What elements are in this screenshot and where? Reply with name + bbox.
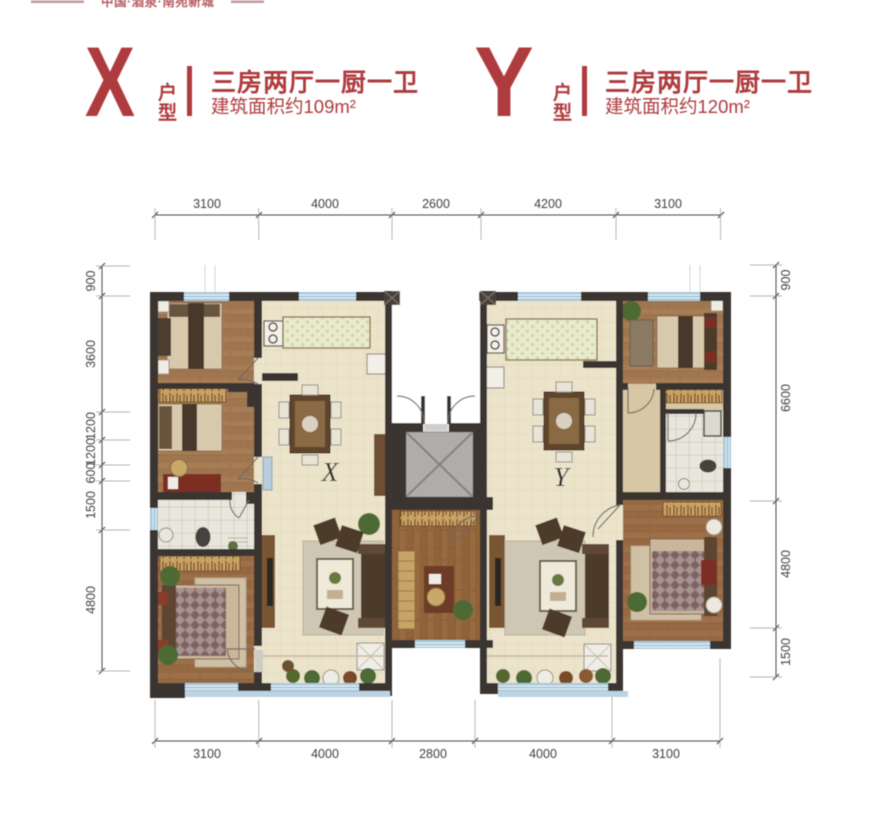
svg-text:6600: 6600 [779,384,793,412]
svg-text:4800: 4800 [84,586,98,614]
svg-text:X: X [85,26,135,137]
svg-text:型: 型 [158,101,177,124]
svg-text:型: 型 [553,101,572,124]
svg-text:X: X [321,457,340,487]
svg-text:建筑面积约120m²: 建筑面积约120m² [605,96,750,117]
svg-text:中国·酒泉·南苑新城: 中国·酒泉·南苑新城 [101,0,214,9]
svg-text:Y: Y [474,27,533,137]
svg-text:3100: 3100 [193,197,221,211]
svg-text:2800: 2800 [419,747,447,761]
svg-text:1200: 1200 [84,412,98,440]
svg-text:3100: 3100 [652,747,680,761]
svg-text:4200: 4200 [534,197,562,211]
svg-text:建筑面积约109m²: 建筑面积约109m² [211,96,356,117]
svg-text:900: 900 [779,270,793,291]
svg-text:三房两厅一厨一卫: 三房两厅一厨一卫 [605,68,813,97]
svg-text:3100: 3100 [193,747,221,761]
svg-text:2600: 2600 [422,197,450,211]
svg-text:三房两厅一厨一卫: 三房两厅一厨一卫 [211,68,419,97]
svg-text:户: 户 [158,81,177,104]
svg-text:4000: 4000 [311,197,339,211]
svg-text:1500: 1500 [84,491,98,519]
svg-text:1500: 1500 [779,638,793,666]
svg-text:4000: 4000 [529,747,557,761]
svg-text:4000: 4000 [311,747,339,761]
svg-text:户: 户 [553,81,572,104]
svg-text:3100: 3100 [654,197,682,211]
svg-text:3600: 3600 [84,340,98,368]
svg-text:4800: 4800 [779,550,793,578]
svg-text:600: 600 [84,463,98,484]
svg-text:1200: 1200 [84,438,98,466]
svg-text:900: 900 [84,271,98,292]
